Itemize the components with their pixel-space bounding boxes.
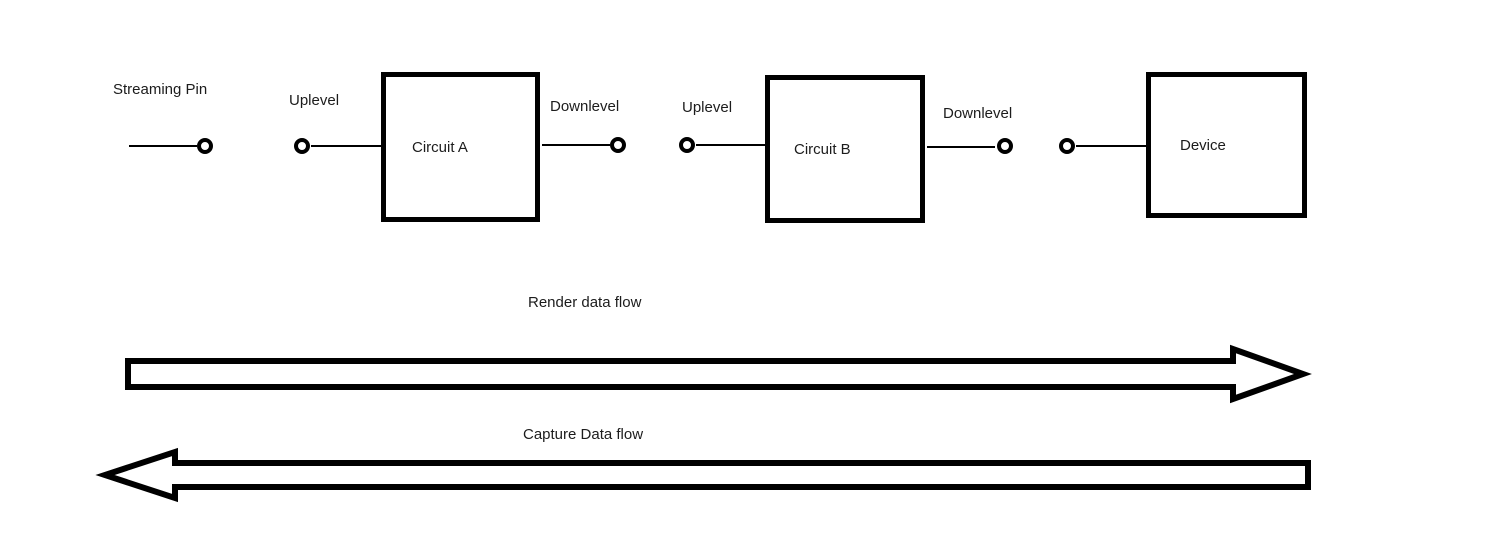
capture-flow-arrow-left-icon bbox=[105, 452, 1308, 498]
pin-terminal-icon bbox=[610, 137, 626, 153]
uplevel-a-label: Uplevel bbox=[289, 92, 339, 109]
streaming-pin-wire bbox=[129, 145, 197, 147]
circuit-a-label: Circuit A bbox=[412, 139, 468, 156]
pin-terminal-icon bbox=[197, 138, 213, 154]
streaming-pipeline-diagram: Streaming Pin Uplevel Circuit A Downleve… bbox=[0, 0, 1488, 555]
circuit-b-label: Circuit B bbox=[794, 141, 851, 158]
render-flow-label: Render data flow bbox=[528, 294, 641, 311]
downlevel-a-wire bbox=[542, 144, 610, 146]
capture-flow-label: Capture Data flow bbox=[523, 426, 643, 443]
pin-terminal-icon bbox=[679, 137, 695, 153]
uplevel-b-wire bbox=[696, 144, 765, 146]
uplevel-a-wire bbox=[311, 145, 381, 147]
downlevel-a-label: Downlevel bbox=[550, 98, 619, 115]
pin-terminal-icon bbox=[997, 138, 1013, 154]
pin-terminal-icon bbox=[294, 138, 310, 154]
device-label: Device bbox=[1180, 137, 1226, 154]
uplevel-b-label: Uplevel bbox=[682, 99, 732, 116]
circuit-b-box: Circuit B bbox=[765, 75, 925, 223]
device-wire bbox=[1076, 145, 1146, 147]
pin-terminal-icon bbox=[1059, 138, 1075, 154]
device-box: Device bbox=[1146, 72, 1307, 218]
render-flow-arrow-right-icon bbox=[128, 349, 1303, 399]
streaming-pin-label: Streaming Pin bbox=[113, 81, 207, 98]
circuit-a-box: Circuit A bbox=[381, 72, 540, 222]
downlevel-b-wire bbox=[927, 146, 995, 148]
downlevel-b-label: Downlevel bbox=[943, 105, 1012, 122]
